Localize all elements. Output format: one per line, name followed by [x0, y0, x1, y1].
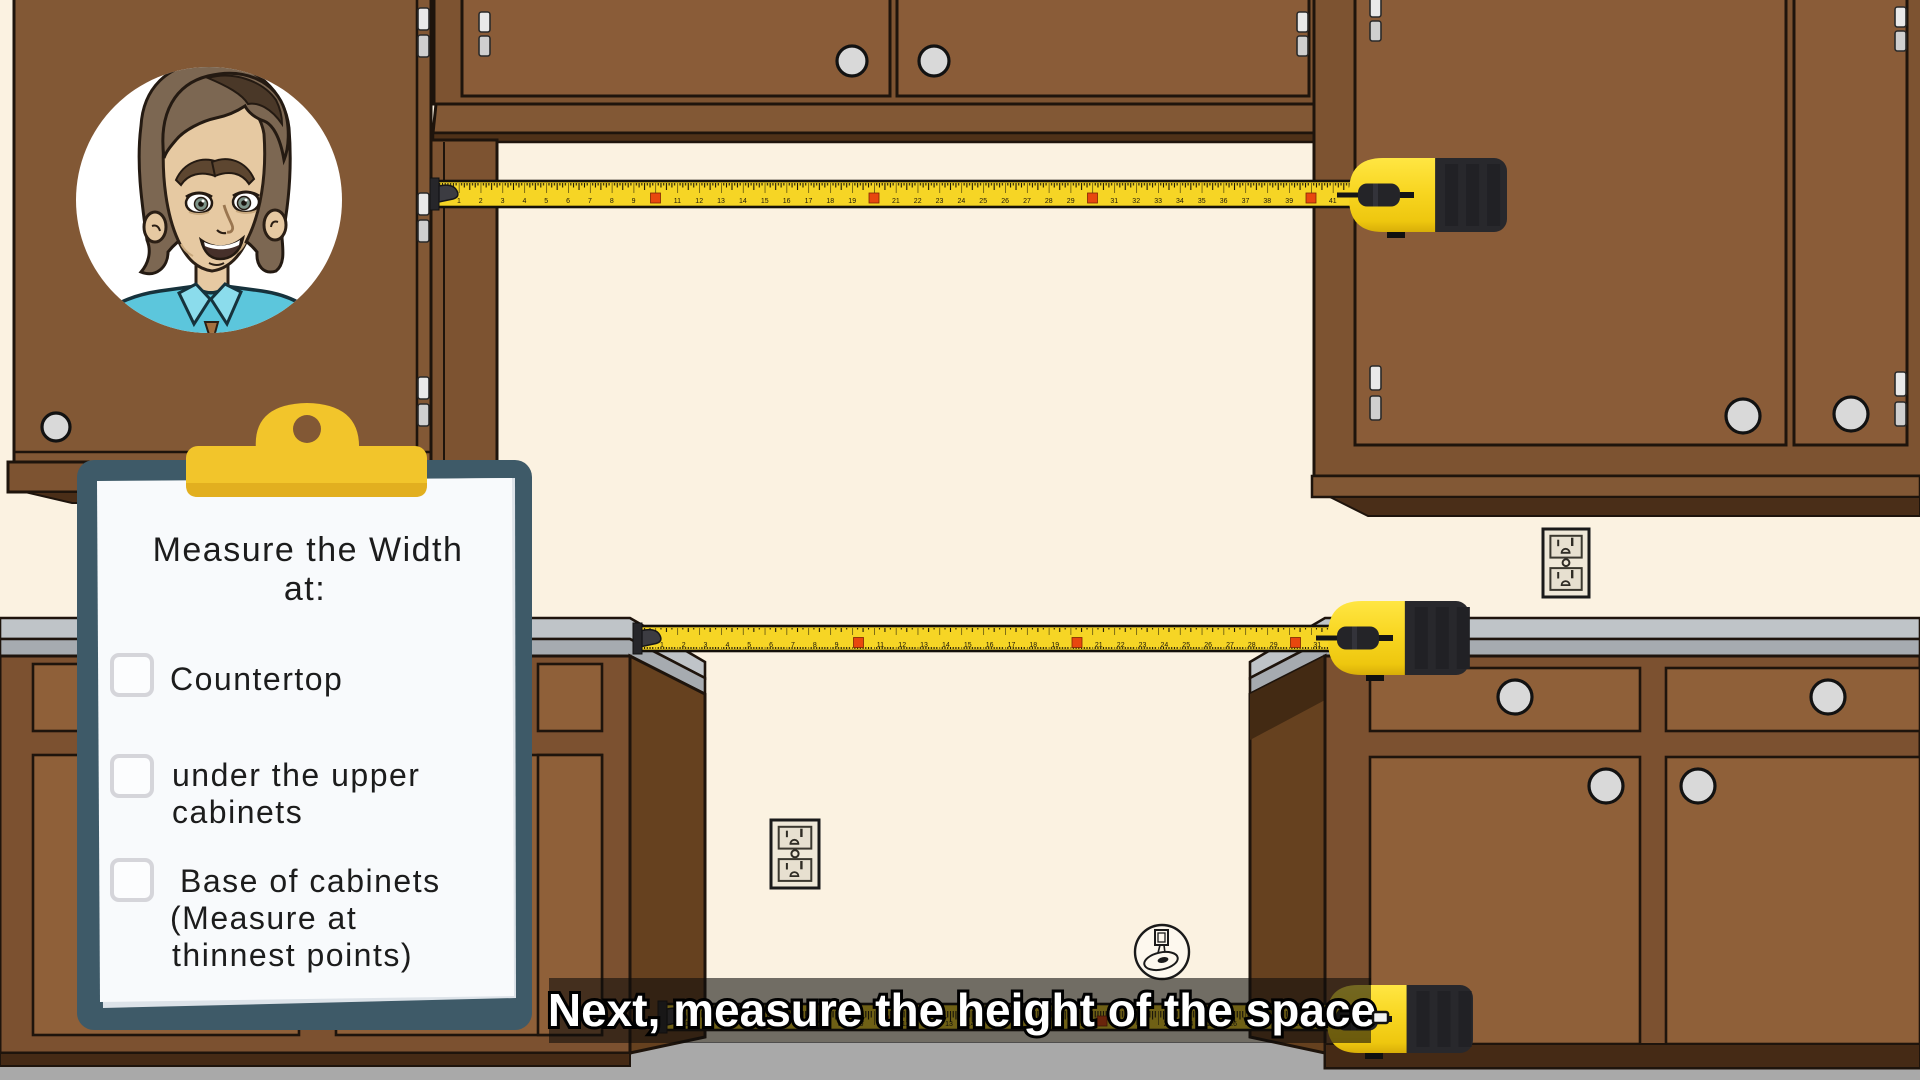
svg-text:4: 4: [522, 198, 526, 205]
svg-text:17: 17: [805, 198, 813, 205]
svg-text:29: 29: [1067, 198, 1075, 205]
svg-text:Measure the Width: Measure the Width: [153, 531, 464, 569]
svg-text:14: 14: [942, 642, 950, 649]
svg-text:8: 8: [610, 198, 614, 205]
svg-text:33: 33: [1154, 198, 1162, 205]
svg-text:1: 1: [457, 198, 461, 205]
svg-text:24: 24: [1161, 642, 1169, 649]
svg-text:12: 12: [898, 642, 906, 649]
svg-text:41: 41: [1329, 198, 1337, 205]
svg-text:9: 9: [835, 642, 839, 649]
svg-text:11: 11: [877, 642, 884, 649]
svg-text:22: 22: [914, 198, 922, 205]
svg-text:4: 4: [725, 642, 729, 649]
svg-text:Base of cabinets: Base of cabinets: [180, 863, 441, 899]
svg-text:7: 7: [588, 198, 592, 205]
svg-text:1: 1: [660, 642, 664, 649]
svg-text:31: 31: [1110, 198, 1118, 205]
svg-text:6: 6: [566, 198, 570, 205]
svg-text:2: 2: [479, 198, 483, 205]
svg-text:39: 39: [1285, 198, 1293, 205]
svg-text:23: 23: [936, 198, 944, 205]
svg-text:19: 19: [1051, 642, 1059, 649]
svg-text:16: 16: [783, 198, 791, 205]
svg-text:19: 19: [848, 198, 856, 205]
svg-text:5: 5: [544, 198, 548, 205]
svg-text:36: 36: [1220, 198, 1228, 205]
svg-text:7: 7: [791, 642, 795, 649]
svg-text:16: 16: [986, 642, 994, 649]
svg-text:3: 3: [501, 198, 505, 205]
svg-text:26: 26: [1204, 642, 1212, 649]
svg-text:29: 29: [1270, 642, 1278, 649]
svg-text:28: 28: [1248, 642, 1256, 649]
svg-text:at:: at:: [284, 570, 326, 608]
svg-text:thinnest points): thinnest points): [172, 937, 413, 973]
svg-text:31: 31: [1313, 642, 1321, 649]
svg-text:26: 26: [1001, 198, 1009, 205]
svg-text:17: 17: [1008, 642, 1016, 649]
svg-text:under the upper: under the upper: [172, 757, 420, 793]
svg-text:18: 18: [1029, 642, 1037, 649]
svg-text:11: 11: [674, 198, 681, 205]
svg-text:32: 32: [1132, 198, 1140, 205]
svg-text:13: 13: [920, 642, 928, 649]
svg-text:14: 14: [739, 198, 747, 205]
svg-text:3: 3: [704, 642, 708, 649]
svg-text:8: 8: [813, 642, 817, 649]
svg-text:28: 28: [1045, 198, 1053, 205]
svg-text:(Measure at: (Measure at: [170, 900, 357, 936]
svg-text:27: 27: [1023, 198, 1031, 205]
svg-text:37: 37: [1242, 198, 1250, 205]
svg-text:Next, measure the height of th: Next, measure the height of the space: [548, 984, 1376, 1036]
svg-text:22: 22: [1117, 642, 1125, 649]
svg-text:21: 21: [892, 198, 900, 205]
svg-text:27: 27: [1226, 642, 1234, 649]
svg-text:25: 25: [1182, 642, 1190, 649]
svg-text:12: 12: [695, 198, 703, 205]
svg-text:6: 6: [769, 642, 773, 649]
svg-text:21: 21: [1095, 642, 1103, 649]
svg-text:18: 18: [826, 198, 834, 205]
svg-text:2: 2: [682, 642, 686, 649]
svg-text:5: 5: [747, 642, 751, 649]
svg-text:15: 15: [964, 642, 972, 649]
svg-text:25: 25: [979, 198, 987, 205]
svg-text:cabinets: cabinets: [172, 794, 303, 830]
svg-text:34: 34: [1176, 198, 1184, 205]
svg-text:35: 35: [1198, 198, 1206, 205]
svg-text:9: 9: [632, 198, 636, 205]
svg-text:38: 38: [1263, 198, 1271, 205]
svg-text:23: 23: [1139, 642, 1147, 649]
svg-text:13: 13: [717, 198, 725, 205]
svg-text:24: 24: [958, 198, 966, 205]
svg-text:Countertop: Countertop: [170, 661, 343, 697]
svg-text:15: 15: [761, 198, 769, 205]
